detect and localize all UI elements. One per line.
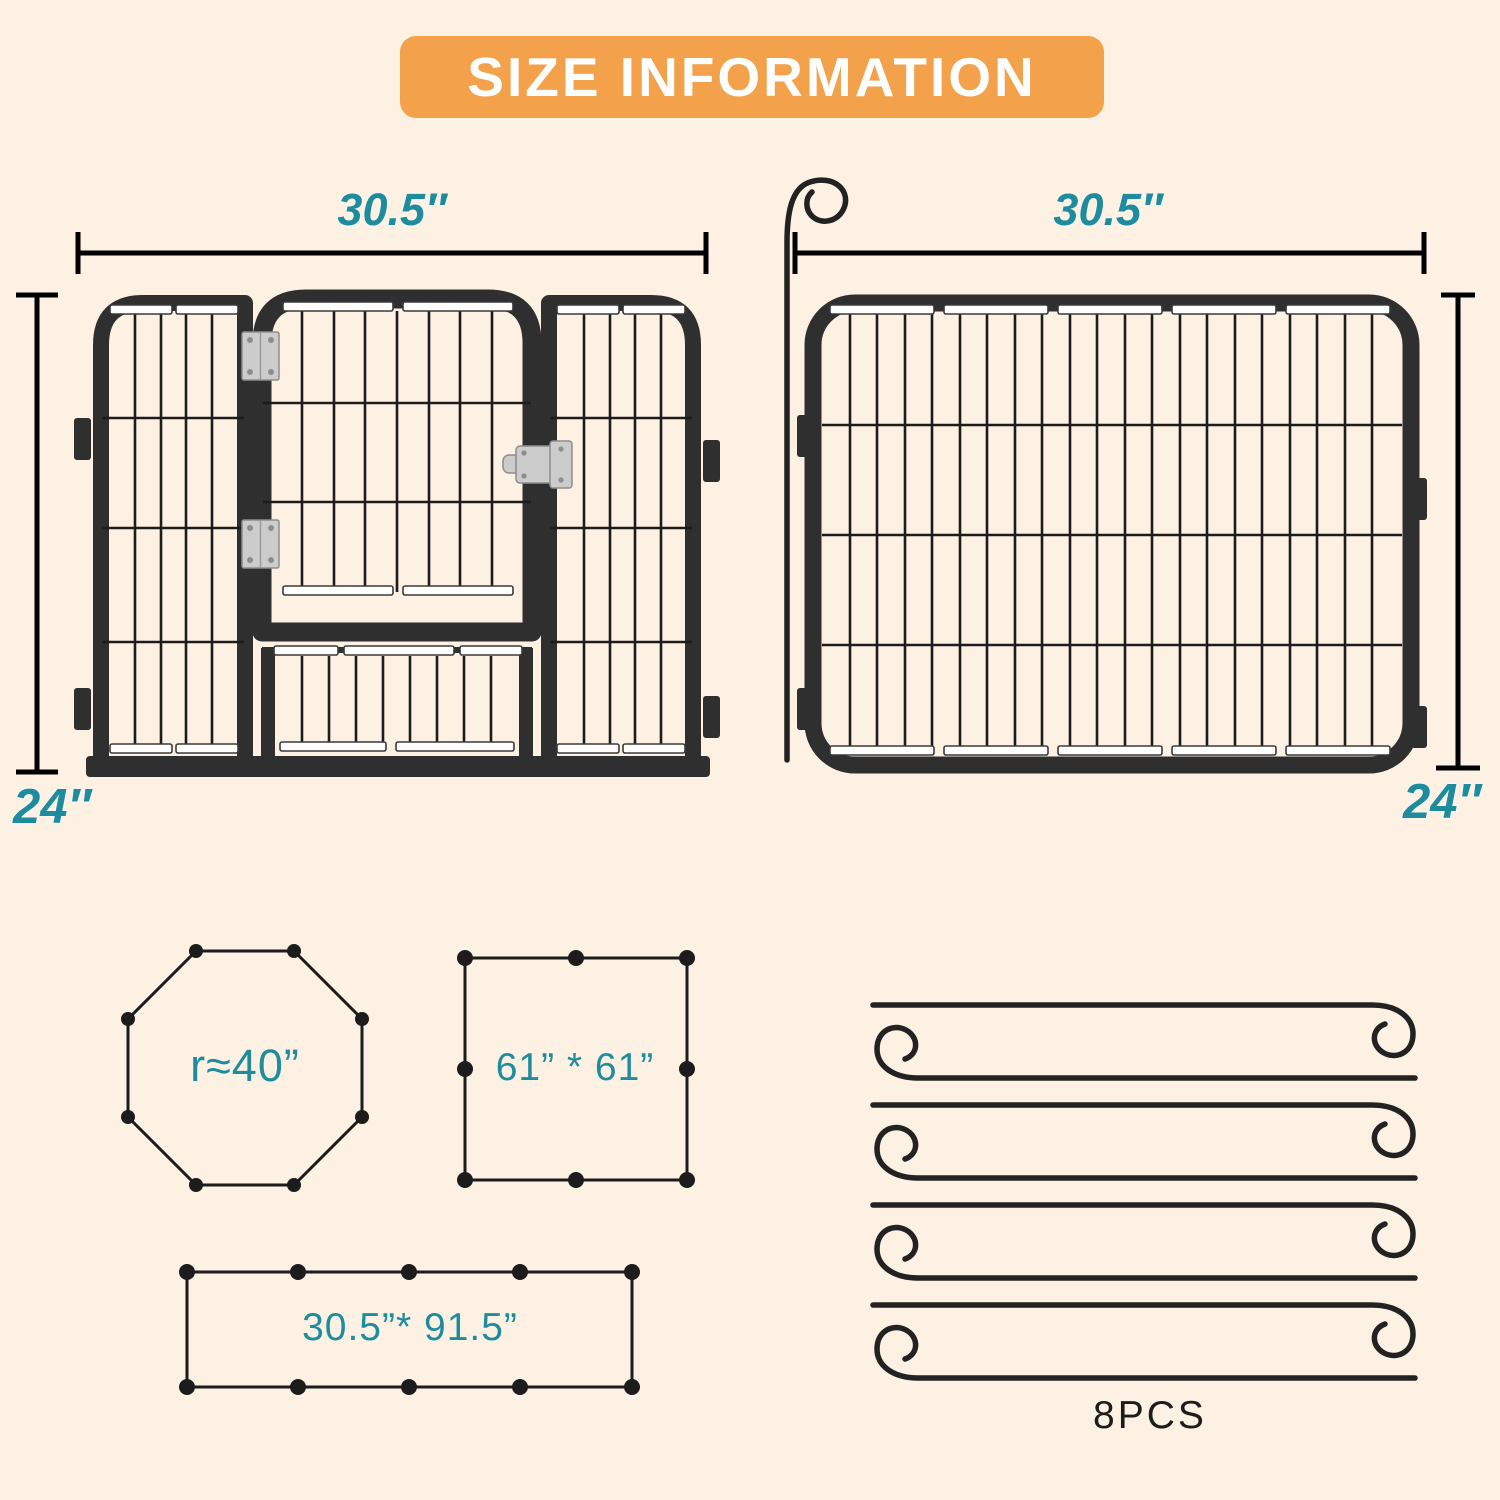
square-size-label: 61” * 61” <box>448 1046 702 1090</box>
ground-stake-icon <box>877 1027 1415 1078</box>
ground-stake-icon <box>877 1327 1415 1378</box>
banner-title: SIZE INFORMATION <box>467 45 1036 109</box>
stakes-diagram <box>873 1005 1415 1378</box>
connector-tab <box>74 688 91 730</box>
ground-stake-icon <box>873 1205 1413 1256</box>
connector-tab <box>797 688 813 730</box>
door-panel-height-label: 24″ <box>0 779 104 835</box>
fence-panel-width-dimension-line <box>795 232 1424 274</box>
connector-tab <box>74 418 91 460</box>
connector-tab <box>1411 706 1427 748</box>
gate-door <box>262 299 532 632</box>
stakes-count-label: 8PCS <box>1045 1394 1255 1438</box>
door-hinge-icon <box>242 332 279 380</box>
connector-tab <box>1411 478 1427 520</box>
door-panel-width-dimension-line <box>78 232 706 274</box>
connector-tab <box>797 415 813 457</box>
rectangle-size-label: 30.5”* 91.5” <box>253 1306 567 1350</box>
ground-stake-icon <box>877 1127 1415 1178</box>
door-latch-icon <box>503 441 572 488</box>
door-panel-width-label: 30.5″ <box>242 184 542 236</box>
ground-stake-icon <box>873 1005 1413 1056</box>
connector-tab <box>703 696 720 738</box>
size-information-banner: SIZE INFORMATION <box>400 36 1104 118</box>
door-panel-height-dimension-line <box>16 295 58 772</box>
diagram-artwork <box>0 0 1500 1500</box>
ground-stake-icon <box>877 1227 1415 1278</box>
connector-tab <box>703 440 720 482</box>
door-panel-diagram <box>16 232 720 777</box>
octagon-size-label: r≈40” <box>143 1040 347 1092</box>
door-bottom-section <box>262 646 532 762</box>
ground-stake-icon <box>873 1105 1413 1156</box>
fence-panel-width-label: 30.5″ <box>958 184 1258 236</box>
fence-panel-height-dimension-line <box>1436 295 1480 768</box>
ground-stake-icon <box>873 1305 1413 1356</box>
fence-panel-diagram <box>795 232 1480 768</box>
door-hinge-icon <box>242 520 279 568</box>
fence-panel-height-label: 24″ <box>1386 774 1498 830</box>
size-information-infographic: SIZE INFORMATION 30.5″ 30.5″ 24″ 24″ r≈4… <box>0 0 1500 1500</box>
